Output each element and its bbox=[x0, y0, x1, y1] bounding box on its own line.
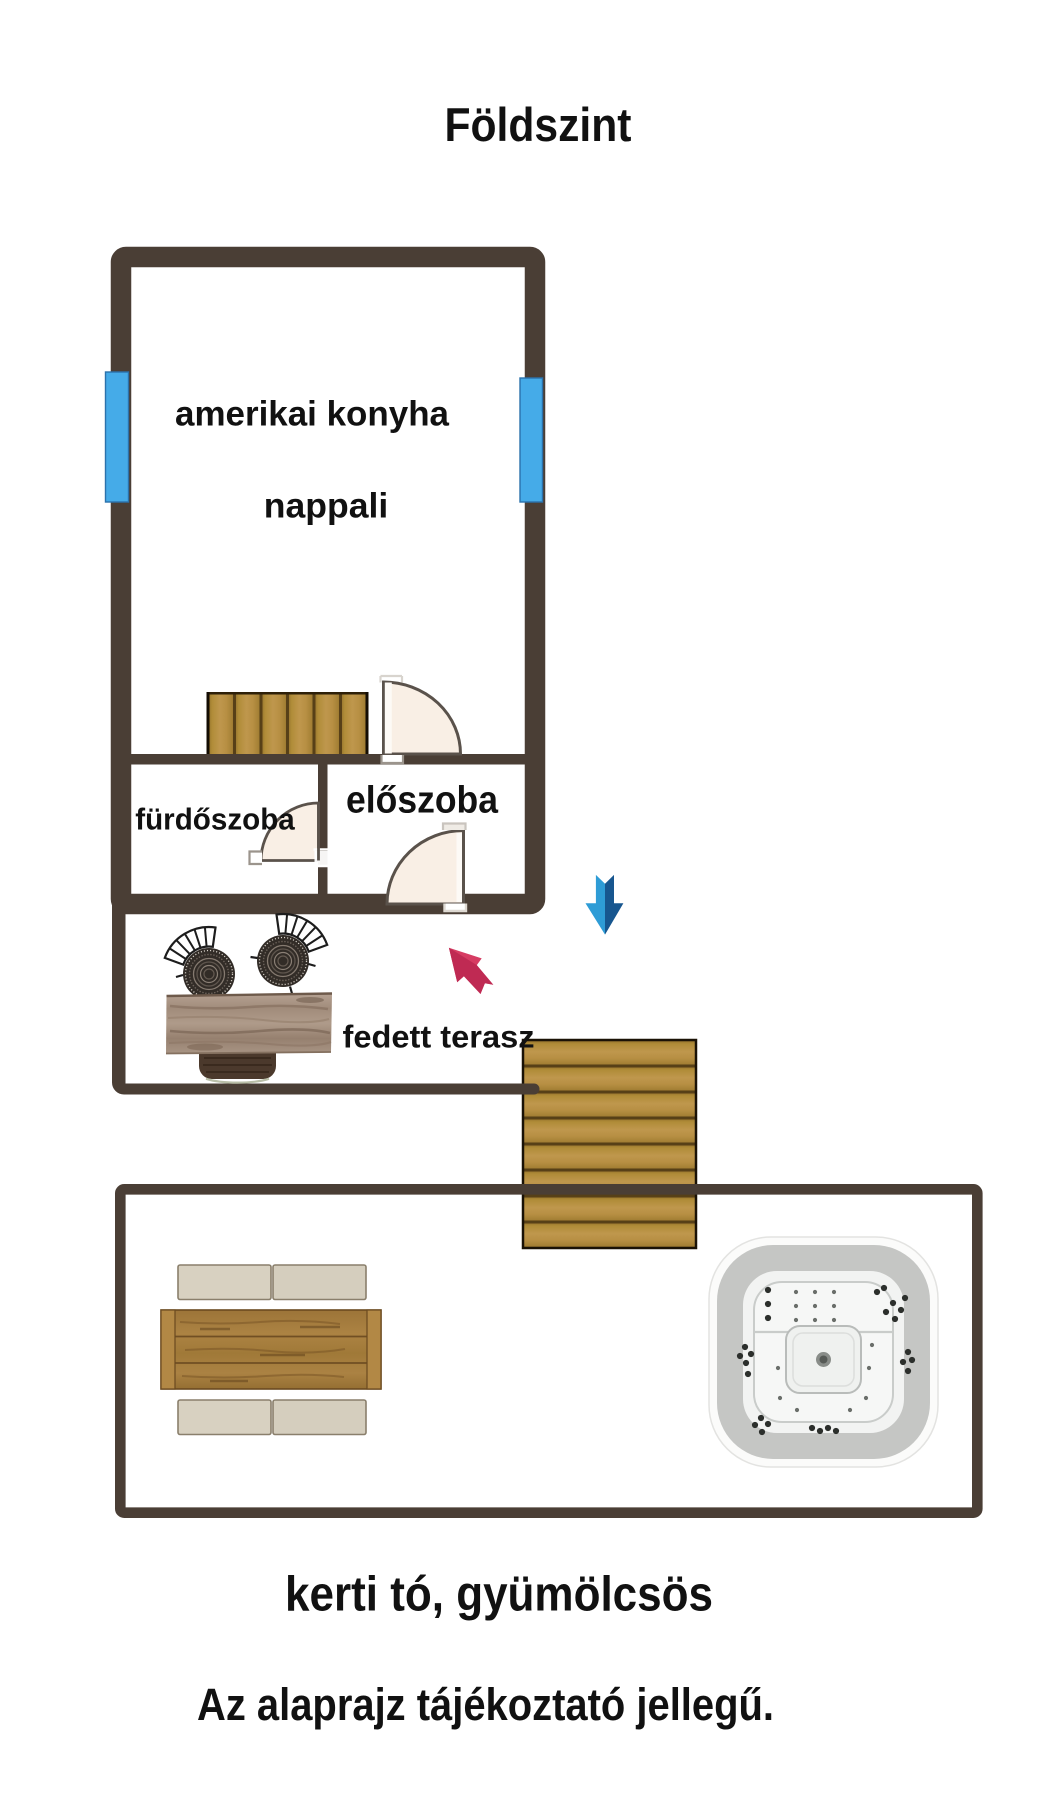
svg-text:amerikai konyha: amerikai konyha bbox=[175, 394, 449, 434]
svg-text:fürdőszoba: fürdőszoba bbox=[135, 803, 296, 837]
svg-text:Földszint: Földszint bbox=[445, 98, 632, 151]
svg-text:nappali: nappali bbox=[264, 486, 389, 526]
svg-text:fedett terasz: fedett terasz bbox=[343, 1019, 535, 1055]
svg-text:Az alaprajz tájékoztató jelleg: Az alaprajz tájékoztató jellegű. bbox=[197, 1679, 774, 1730]
svg-text:előszoba: előszoba bbox=[346, 780, 499, 822]
svg-text:kerti tó, gyümölcsös: kerti tó, gyümölcsös bbox=[285, 1567, 713, 1622]
